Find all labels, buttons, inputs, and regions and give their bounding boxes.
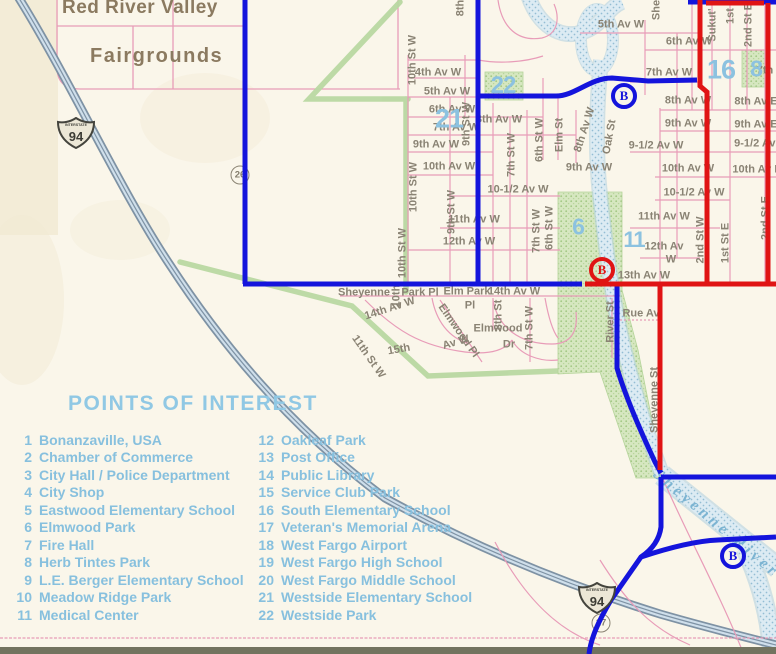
city-street-map: Red River Valley Fairgrounds Sheyenne Ri…: [0, 0, 776, 654]
city-boundary-red: [585, 0, 776, 470]
map-boundary-layer: [0, 0, 776, 654]
city-boundary-blue: [243, 0, 776, 654]
